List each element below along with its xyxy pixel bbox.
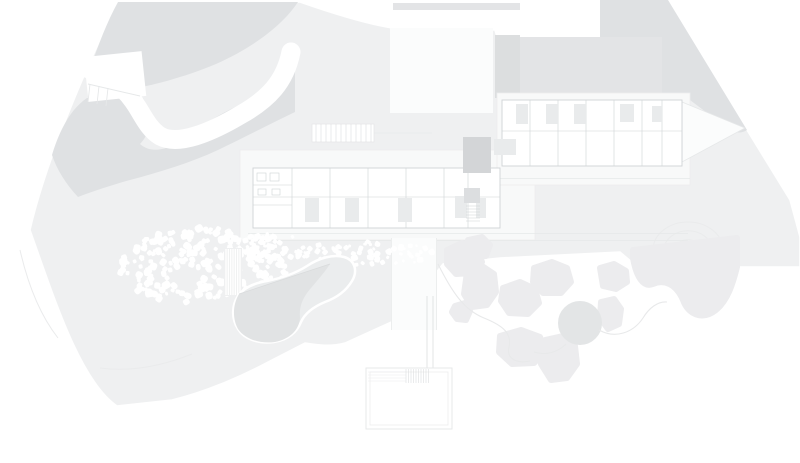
- canopy-mass-east: [633, 238, 737, 315]
- driveway-parking-spur: [84, 51, 146, 102]
- stair-core: [464, 188, 480, 203]
- west-wing: [253, 168, 500, 228]
- canopy-blob: [452, 303, 470, 320]
- retaining-wall-strip: [393, 3, 520, 10]
- light-room: [494, 139, 516, 155]
- slope-bank-above-east-wing: [497, 37, 662, 97]
- garage-block: [495, 35, 520, 98]
- canopy-blob: [468, 237, 490, 257]
- auto-court: [390, 28, 493, 113]
- site-plan-canvas: [0, 0, 800, 463]
- courtyard-room: [463, 137, 491, 173]
- canopy-blob: [600, 264, 627, 289]
- canopy-blob: [501, 282, 539, 314]
- east-wing: [502, 100, 682, 166]
- site-plan-drawing: [0, 0, 800, 463]
- canopy-blob: [464, 266, 496, 307]
- canopy-blob: [600, 299, 621, 329]
- canopy-blob: [533, 262, 571, 293]
- large-tree-canopy: [561, 304, 599, 342]
- stepped-path: [224, 248, 242, 296]
- viewing-deck: [366, 368, 452, 429]
